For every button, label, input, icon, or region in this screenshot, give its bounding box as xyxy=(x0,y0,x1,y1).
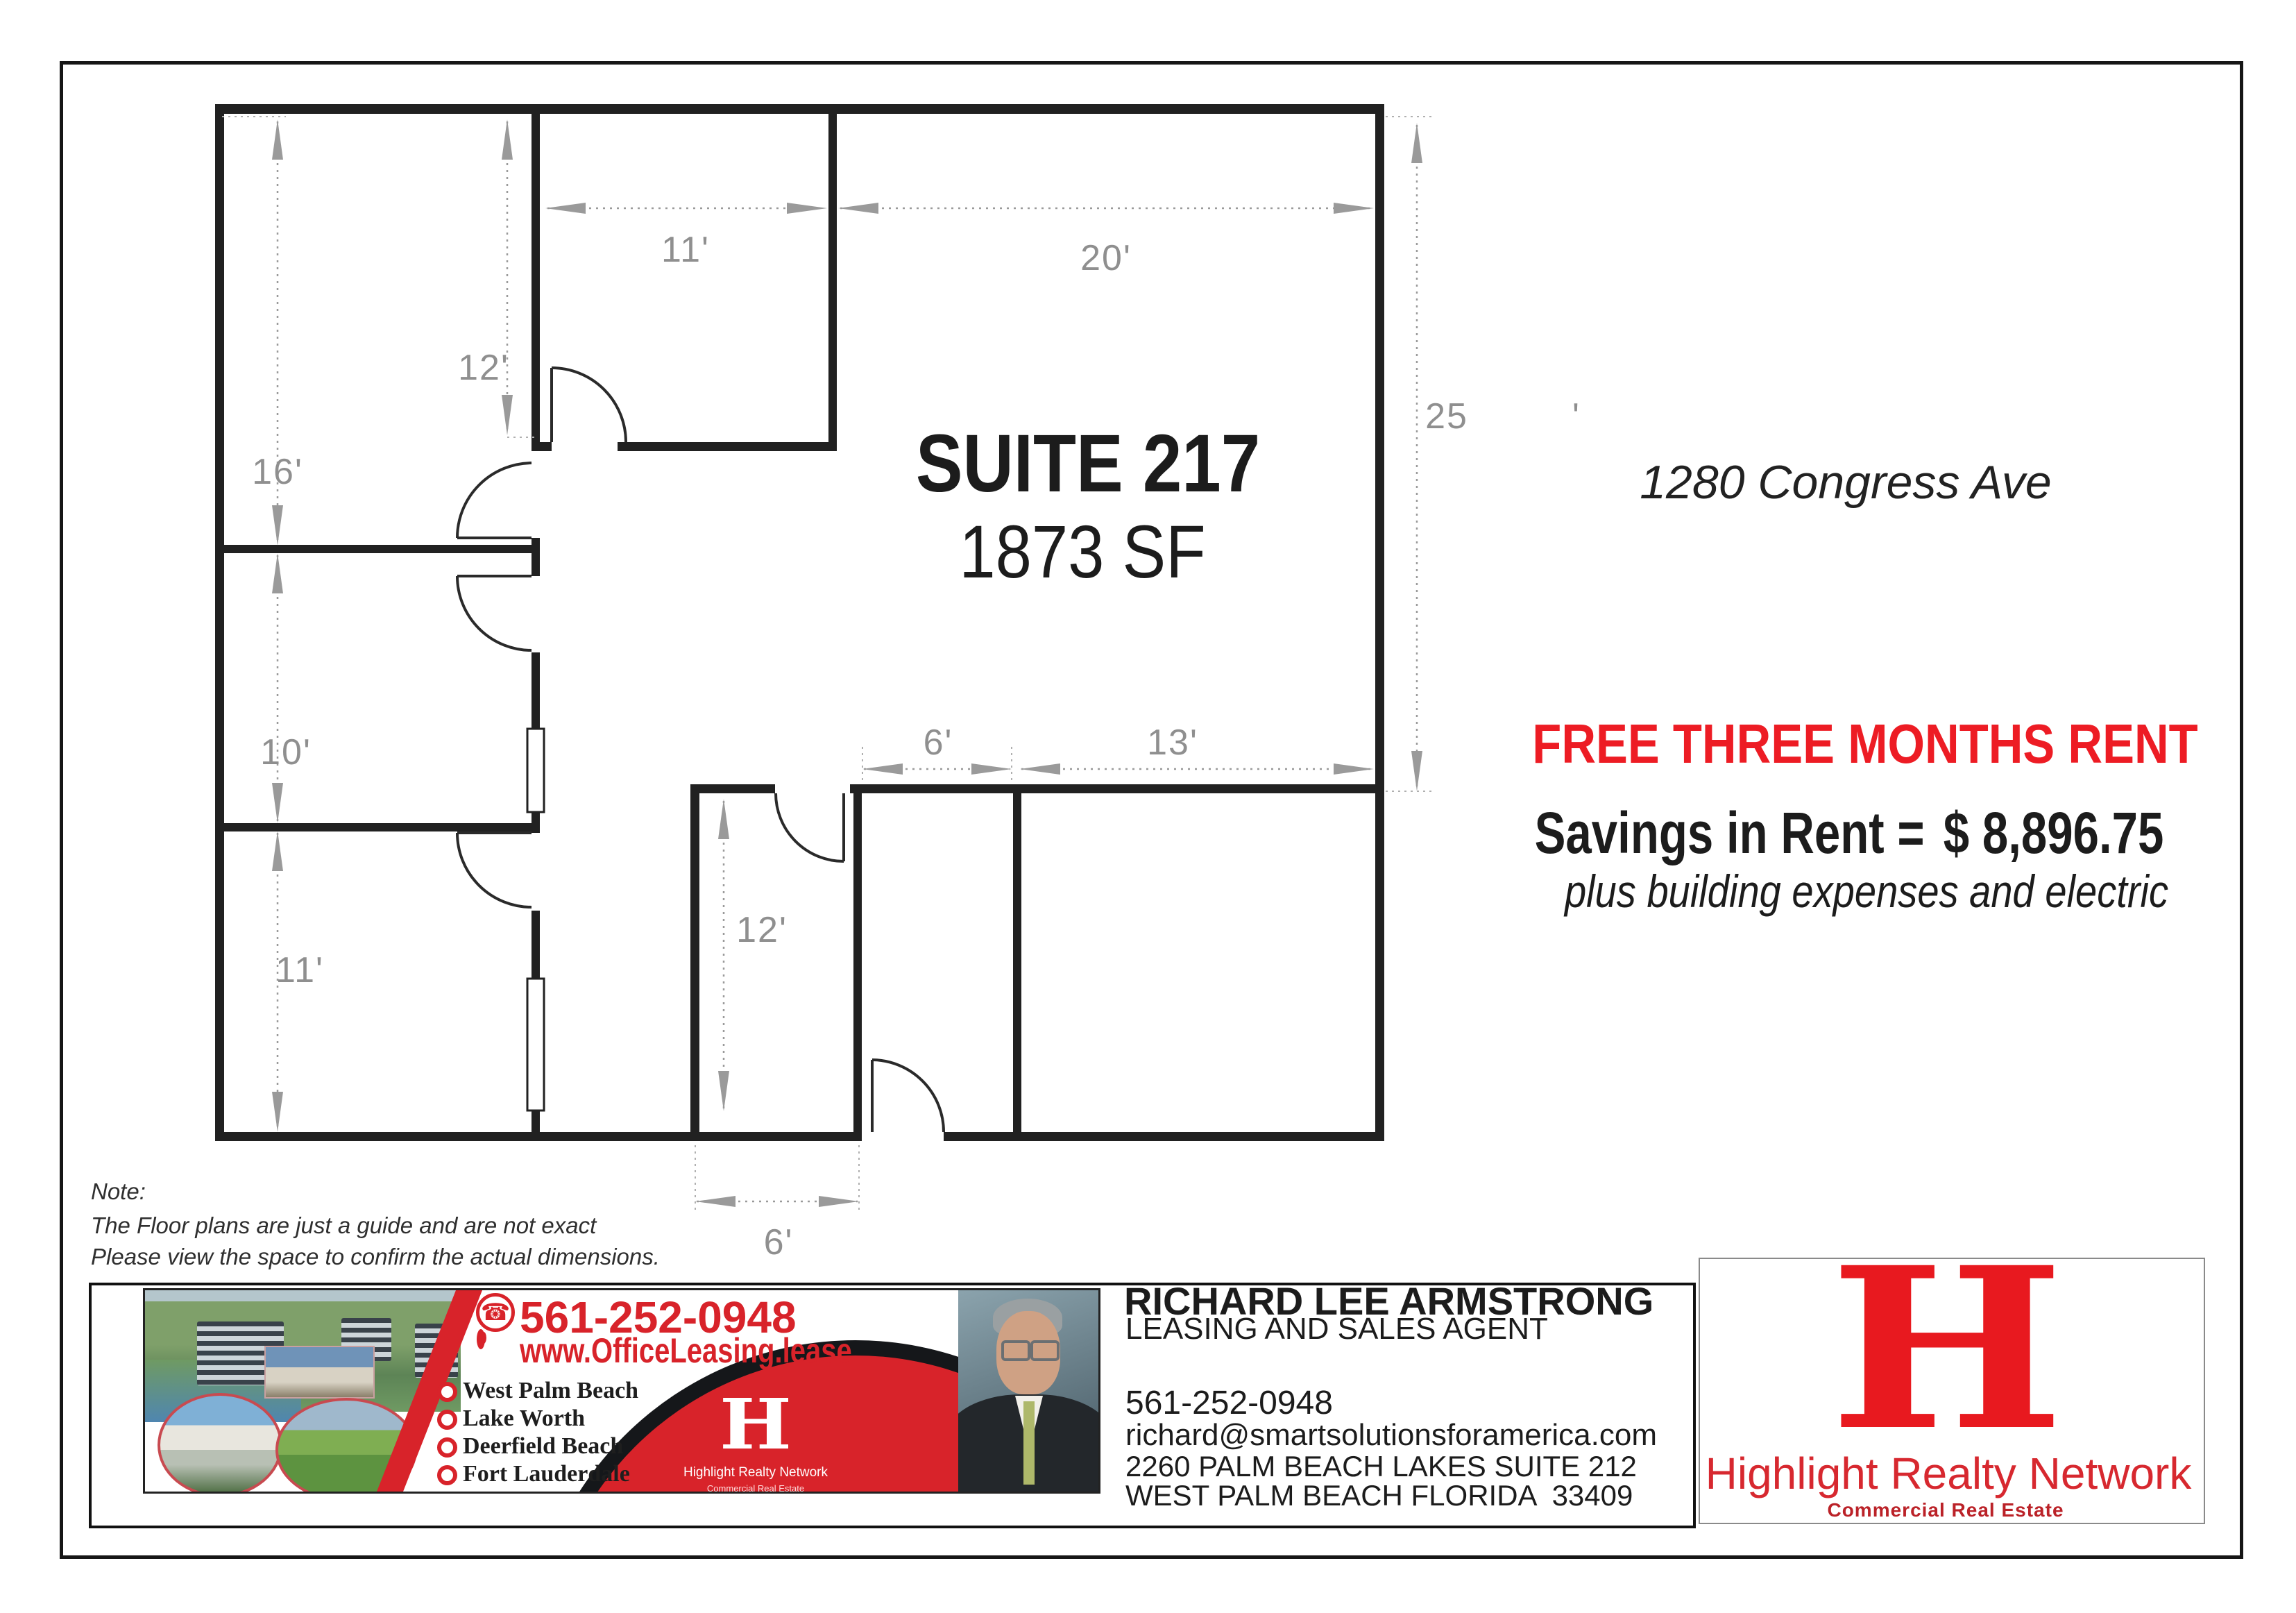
note-title: Note: xyxy=(91,1180,660,1203)
dim-label-10ft: 10' xyxy=(260,732,312,773)
agent-glasses xyxy=(1030,1340,1060,1361)
brand-name: Highlight Realty Network xyxy=(1706,1448,2192,1499)
note-line2: Please view the space to confirm the act… xyxy=(91,1245,660,1268)
agent-phone: 561-252-0948 xyxy=(1125,1384,1333,1422)
dim-label-12ft-bottom: 12' xyxy=(736,909,788,951)
dim-label-11ft-left: 11' xyxy=(275,949,324,991)
savings-amount: $ 8,896.75 xyxy=(1944,800,2164,867)
dim-label-6ft-mid: 6' xyxy=(924,722,953,763)
dim-label-12ft-top: 12' xyxy=(458,347,509,389)
promo-headline: FREE THREE MONTHS RENT xyxy=(1532,712,2197,776)
ad-logo-tagline: Commercial Real Estate xyxy=(707,1483,804,1494)
bullet-icon xyxy=(437,1465,457,1485)
location-fort-lauderdale: Fort Lauderdale xyxy=(463,1461,630,1487)
dim-label-25ft: 25 xyxy=(1425,396,1468,437)
dimension-extensions xyxy=(222,117,1434,1213)
flyer-page: 16' 12' 11' 20' 25 ' 10' 6' 13' 11' 12' … xyxy=(0,0,2296,1613)
bullet-icon xyxy=(437,1382,457,1402)
agent-email: richard@smartsolutionsforamerica.com xyxy=(1125,1418,1657,1453)
dim-label-16ft: 16' xyxy=(252,451,303,493)
agent-tie xyxy=(1023,1401,1035,1485)
suite-area: 1873 SF xyxy=(959,508,1205,595)
suite-title: SUITE 217 xyxy=(916,416,1260,511)
ad-logo-letter: H xyxy=(720,1396,792,1453)
note-line1: The Floor plans are just a guide and are… xyxy=(91,1214,660,1237)
dim-label-20ft: 20' xyxy=(1080,237,1132,279)
dimension-arrows xyxy=(272,119,1422,1207)
clubhouse-photo xyxy=(264,1346,375,1399)
phone-icon: ☎ xyxy=(476,1293,515,1332)
savings-label: Savings in Rent = xyxy=(1535,800,1925,867)
agent-title: LEASING AND SALES AGENT xyxy=(1125,1312,1548,1346)
dim-label-11ft-top: 11' xyxy=(661,229,710,271)
property-address: 1280 Congress Ave xyxy=(1640,455,2052,509)
promo-note: plus building expenses and electric xyxy=(1565,865,2168,918)
agent-glasses xyxy=(1001,1340,1030,1361)
promo-savings: Savings in Rent =$ 8,896.75 xyxy=(1535,800,2164,867)
dimension-lines xyxy=(278,121,1417,1201)
agent-address-line1: 2260 PALM BEACH LAKES SUITE 212 xyxy=(1125,1450,1637,1483)
ad-graphic: H Highlight Realty Network Commercial Re… xyxy=(143,1288,1100,1494)
ad-website: www.OfficeLeasing.lease xyxy=(520,1331,852,1371)
globe-icon xyxy=(477,1329,485,1349)
brand-tagline: Commercial Real Estate xyxy=(1827,1499,2064,1521)
brand-logo-letter: H xyxy=(1830,1239,2065,1461)
agent-photo xyxy=(958,1290,1098,1492)
location-deerfield-beach: Deerfield Beach xyxy=(463,1433,623,1460)
location-lake-worth: Lake Worth xyxy=(463,1405,585,1432)
disclaimer-note: Note: The Floor plans are just a guide a… xyxy=(91,1180,660,1268)
dim-label-6ft-bottom: 6' xyxy=(764,1222,794,1263)
agent-address-line2: WEST PALM BEACH FLORIDA 33409 xyxy=(1125,1479,1633,1512)
bullet-icon xyxy=(437,1410,457,1430)
dim-label-13ft: 13' xyxy=(1147,722,1198,763)
ad-logo-name: Highlight Realty Network xyxy=(683,1465,828,1480)
location-west-palm-beach: West Palm Beach xyxy=(463,1378,638,1404)
walls xyxy=(215,104,1384,1141)
bullet-icon xyxy=(437,1437,457,1458)
building-oval-photo xyxy=(158,1393,282,1494)
dim-label-25ft-tick: ' xyxy=(1572,396,1581,437)
